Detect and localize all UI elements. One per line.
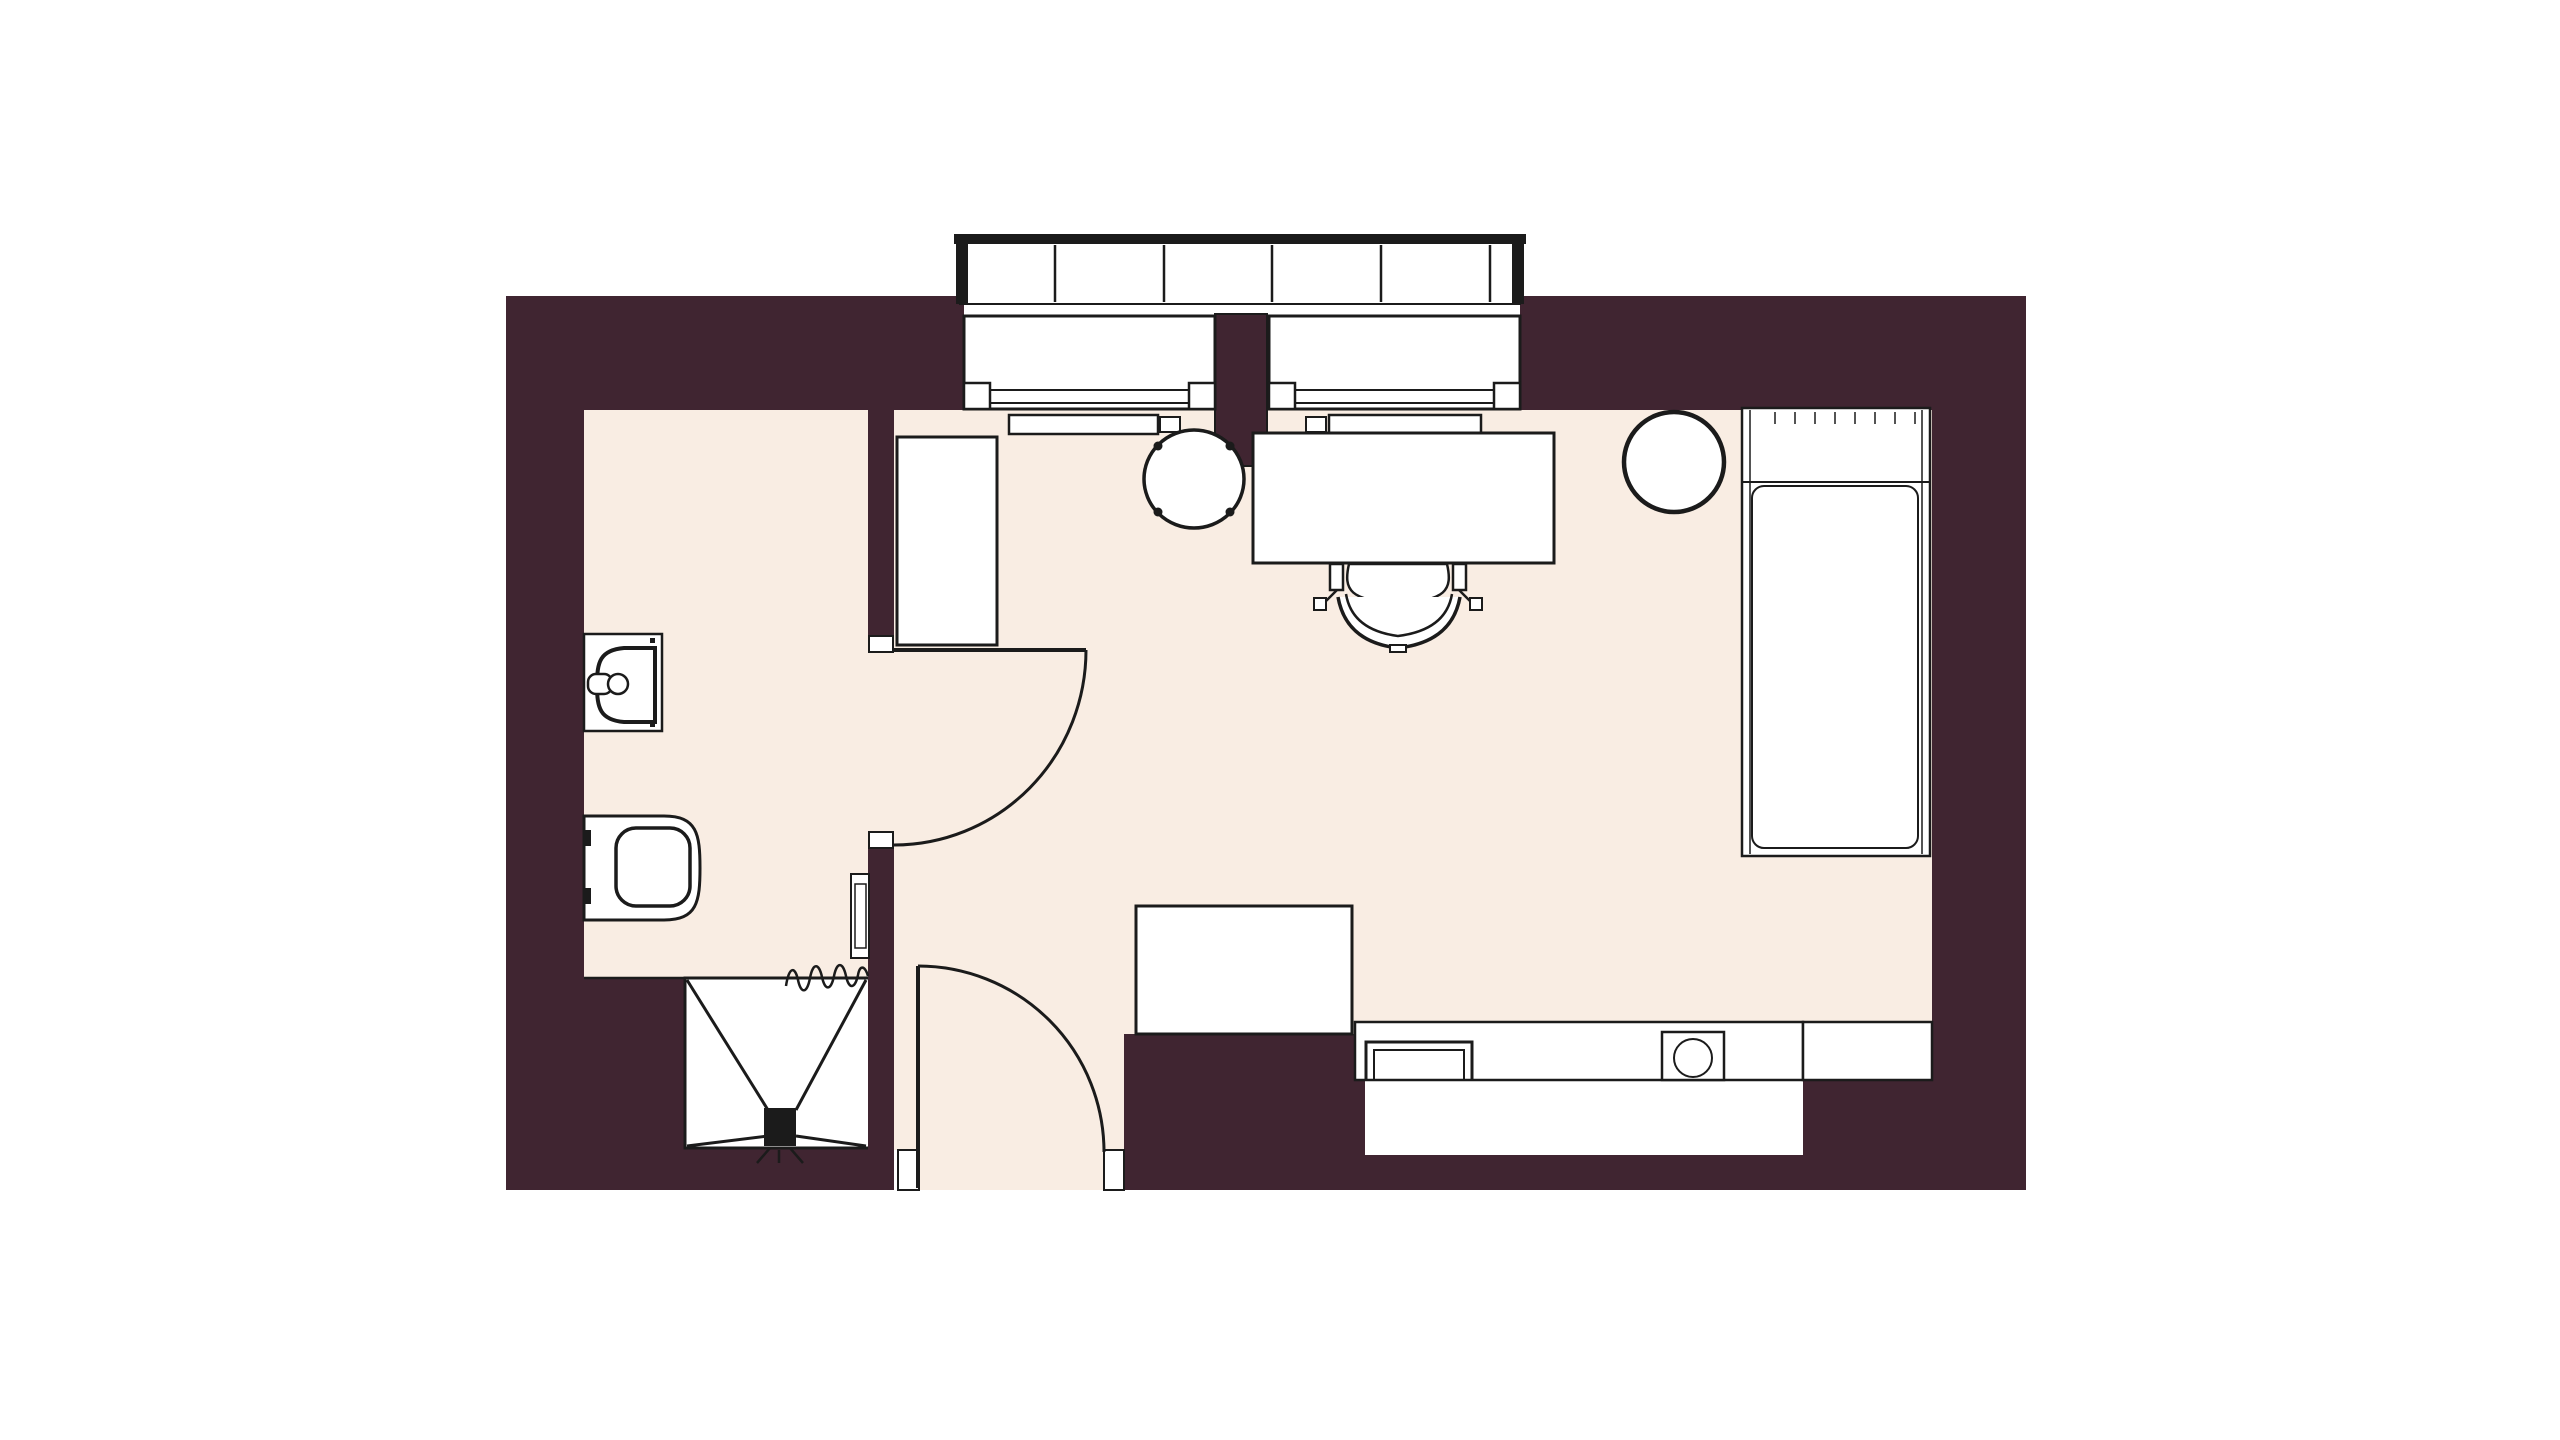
window-right-jamb-left <box>1269 383 1295 409</box>
kitchen-fridge <box>1803 1022 1932 1080</box>
side-table-dot-nw <box>1154 442 1163 451</box>
doorjamb-bathroom-bottom <box>869 832 893 848</box>
doorjamb-bathroom-top <box>869 636 893 652</box>
wall-right <box>1932 296 2026 1190</box>
desk <box>1253 433 1554 563</box>
radiator-right-body <box>1329 415 1481 434</box>
side-table-dot-sw <box>1154 508 1163 517</box>
side-table-dot-se <box>1226 508 1235 517</box>
shower-drain <box>764 1108 796 1146</box>
floor-plan-drawing <box>0 0 2560 1440</box>
side-table-dot-ne <box>1226 442 1235 451</box>
desk-chair-arm-left <box>1330 564 1343 590</box>
bathroom-sink-faucet-knob <box>608 674 628 694</box>
wall-bathroom-bottom <box>584 978 685 1190</box>
radiator-left-body <box>1009 415 1158 434</box>
bed-frame <box>1742 408 1930 856</box>
desk-chair-arm-right <box>1453 564 1466 590</box>
toilet-mount-bottom <box>584 888 591 904</box>
desk-chair-foot-right <box>1470 598 1482 610</box>
window-left-jamb-right <box>1189 383 1215 409</box>
window-left-jamb-left <box>964 383 990 409</box>
shower-diagonal-top-right <box>796 980 866 1110</box>
wall-divider-lower <box>868 844 894 1190</box>
radiator-left-valve <box>1160 417 1180 432</box>
stool <box>1624 412 1724 512</box>
doorjamb-entry-right <box>1104 1150 1124 1190</box>
wall-bottom-right <box>1803 1080 2026 1190</box>
doorjamb-entry-left <box>898 1150 919 1190</box>
radiator-right-valve <box>1306 417 1326 432</box>
window-right-frame <box>1269 316 1520 409</box>
floor-plan <box>0 0 2560 1440</box>
toilet-mount-top <box>584 830 591 846</box>
bathroom-sink-dot-bottom <box>650 722 655 727</box>
balcony-rail-cap-left <box>956 234 968 304</box>
wall-bottom-mid <box>1365 1155 1820 1190</box>
shower-diagonal-bottom-right <box>796 1136 866 1146</box>
shower-diagonal-bottom-left <box>687 1136 768 1146</box>
desk-chair-back-nub <box>1390 645 1406 652</box>
toilet-seat <box>616 828 690 906</box>
balcony-rail-top-bar <box>954 234 1526 244</box>
balcony-rail-body <box>960 242 1520 304</box>
bathroom-sink-dot-top <box>650 638 655 643</box>
wall-left <box>506 296 584 1190</box>
entry-cabinet <box>1136 906 1352 1034</box>
window-left-frame <box>964 316 1215 409</box>
kitchen-window-band <box>1365 1080 1820 1155</box>
desk-chair-foot-left <box>1314 598 1326 610</box>
floor-bathroom-doorway <box>866 652 896 836</box>
window-right-jamb-right <box>1494 383 1520 409</box>
wall-divider-upper <box>868 408 894 640</box>
wall-entry-right <box>1124 1034 1365 1190</box>
wardrobe <box>897 437 997 645</box>
wall-under-shower <box>685 1148 868 1190</box>
shower-diagonal-top-left <box>687 980 768 1110</box>
balcony-rail-cap-right <box>1512 234 1524 304</box>
